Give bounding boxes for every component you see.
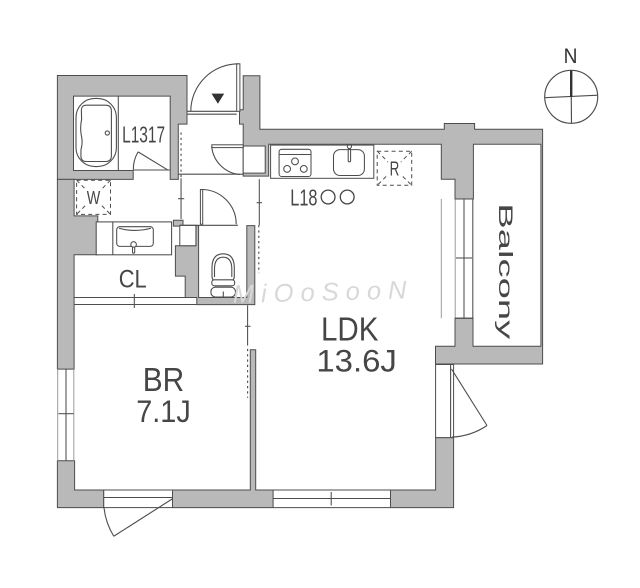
svg-text:R: R: [390, 159, 400, 181]
svg-text:MiOoSooN: MiOoSooN: [232, 276, 413, 309]
svg-text:13.6J: 13.6J: [316, 343, 397, 379]
svg-text:N: N: [564, 44, 578, 68]
svg-text:Balcony: Balcony: [494, 203, 516, 339]
svg-text:L18: L18: [290, 185, 317, 211]
svg-text:7.1J: 7.1J: [136, 393, 191, 429]
svg-text:L1317: L1317: [122, 122, 165, 148]
svg-text:CL: CL: [119, 266, 147, 294]
svg-text:W: W: [87, 187, 101, 208]
